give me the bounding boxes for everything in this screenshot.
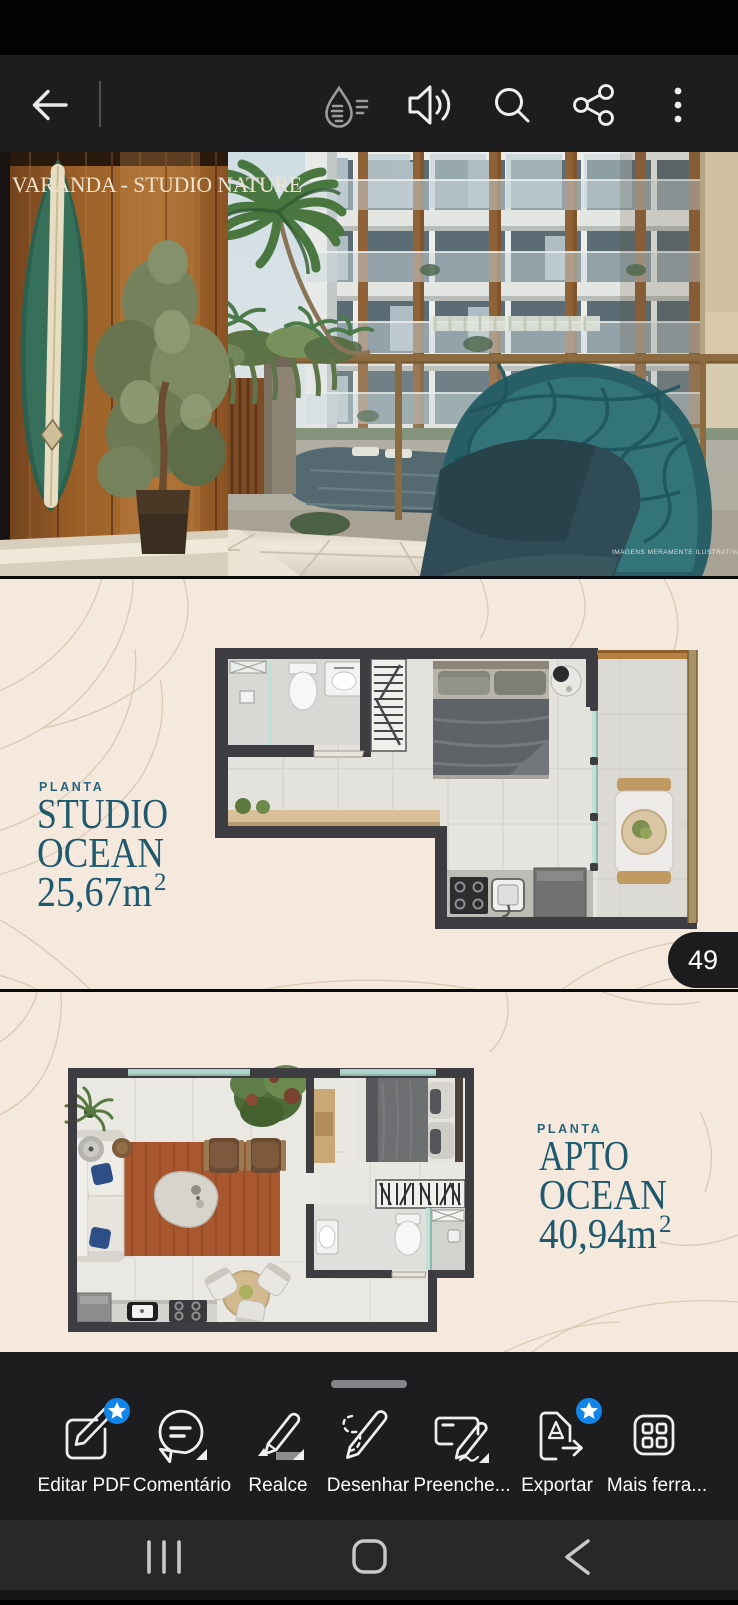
svg-text:2: 2 xyxy=(154,869,167,896)
svg-text:Exportar: Exportar xyxy=(521,1475,593,1496)
svg-text:Realce: Realce xyxy=(248,1475,307,1496)
svg-text:IMAGENS MERAMENTE ILUSTRATIVAS: IMAGENS MERAMENTE ILUSTRATIVAS xyxy=(612,549,738,556)
svg-text:Desenhar: Desenhar xyxy=(327,1475,410,1496)
svg-text:40,94m: 40,94m xyxy=(539,1212,657,1258)
svg-text:25,67m: 25,67m xyxy=(37,870,152,916)
svg-text:Mais ferra...: Mais ferra... xyxy=(607,1475,707,1496)
svg-text:Comentário: Comentário xyxy=(133,1475,231,1496)
svg-text:Editar PDF: Editar PDF xyxy=(38,1475,131,1496)
svg-text:Preenche...: Preenche... xyxy=(413,1475,510,1496)
svg-text:VARANDA - STUDIO NATURE: VARANDA - STUDIO NATURE xyxy=(12,172,302,197)
svg-text:2: 2 xyxy=(659,1211,672,1238)
